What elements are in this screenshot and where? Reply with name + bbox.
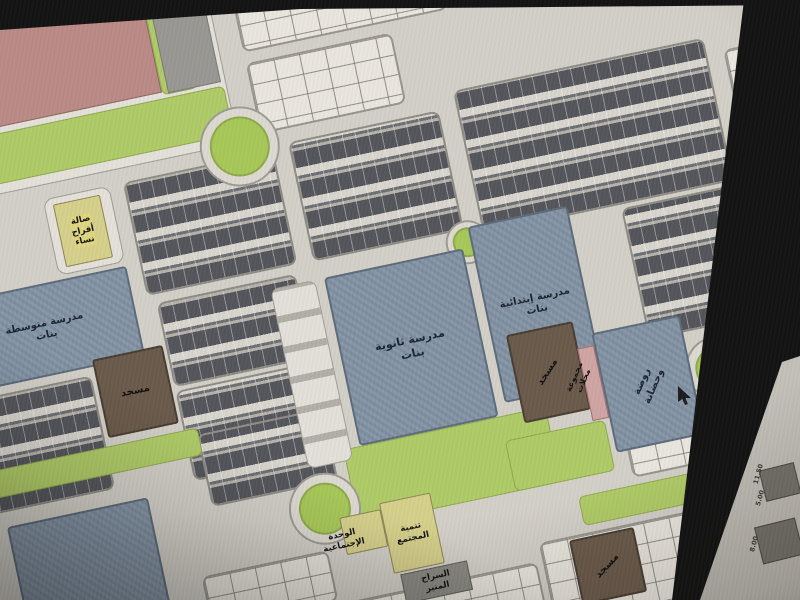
middle-school-label: مدرسة متوسطة بنات [4,309,87,350]
secondary-school-label: مدرسة ثانوية بنات [374,326,449,368]
primary-school-east-label: مدرسة إبتدائية بنات [499,285,574,324]
zone-primary-school-girls-south: مدرسة إبتدائية بنات [7,497,177,600]
empty-plots-right [723,11,800,196]
wedding-hall-block: صالة أفراح نساء [43,186,126,276]
zone-nursery: روضة وحضانة [591,315,704,453]
empty-plots-top-4 [246,32,407,133]
zone-mosque-west: مسجد [92,345,179,438]
dimension-label-2: 5.00 [754,489,766,507]
wedding-hall-label: صالة أفراح نساء [68,213,97,249]
mosque-center-label: مسجد [535,357,561,388]
nursery-label: روضة وحضانة [629,362,666,406]
monitor-screen: البـ [0,0,800,600]
master-plan-map: البـ [0,0,800,600]
zone-mosque-southeast: مسجد [569,527,647,600]
zone-secondary-school-girls: مدرسة ثانوية بنات [324,248,499,446]
zone-wedding-hall: صالة أفراح نساء [53,195,113,268]
screen-photo: البـ [0,0,800,600]
mosque-west-label: مسجد [120,382,151,400]
housing-cluster-2 [288,110,464,261]
empty-plots-bottom-2 [201,550,338,600]
side-sheet-plot-diagram-1 [759,462,800,502]
mosque-southeast-label: مسجد [593,551,622,581]
housing-cluster-1 [123,151,298,296]
siraj-almunir-label: السراج المنير [420,569,453,596]
community-development-label: تنمية المجتمع [394,519,431,547]
side-sheet-plot-diagram-2 [754,517,800,564]
